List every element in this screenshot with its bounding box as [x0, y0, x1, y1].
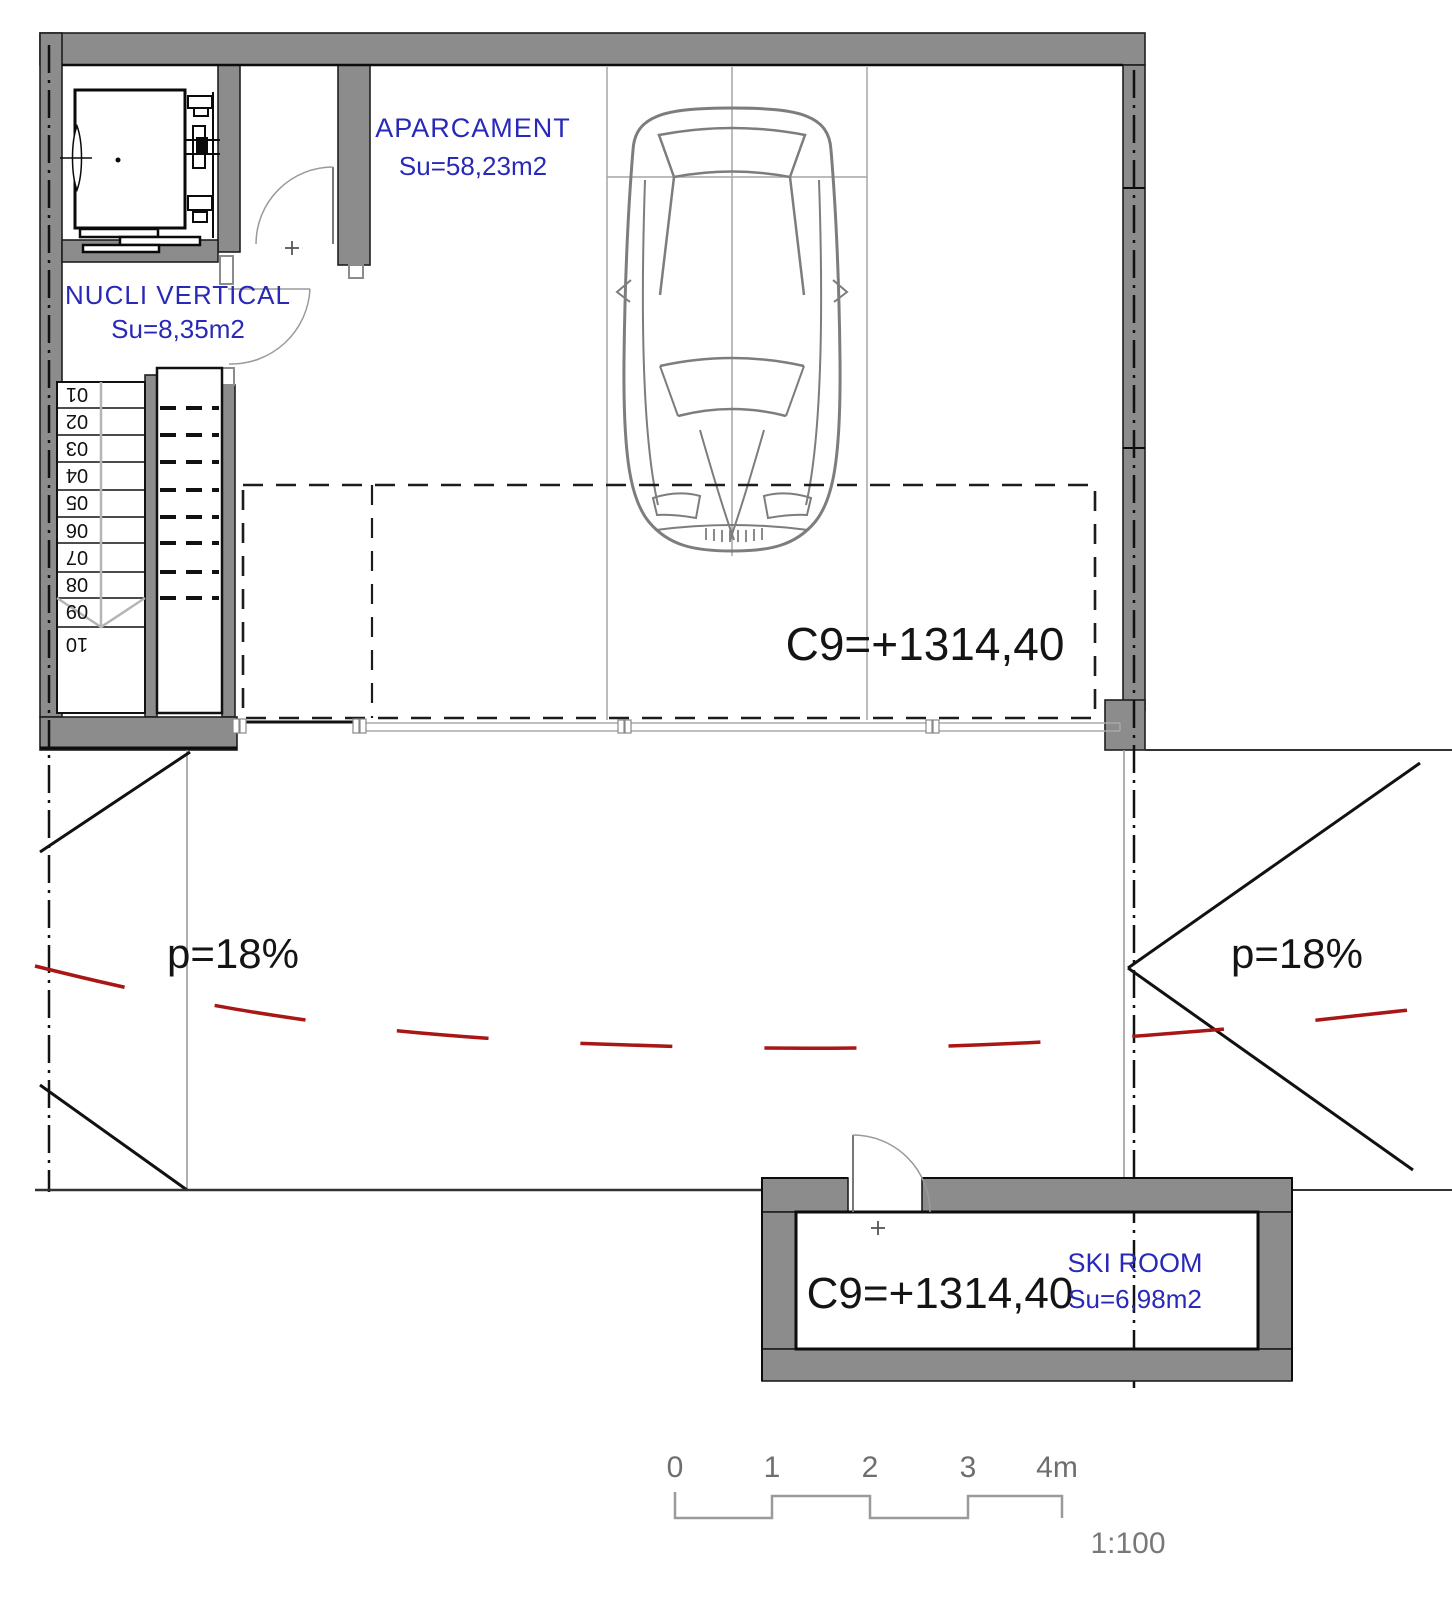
label-aparcament: APARCAMENT	[375, 113, 571, 143]
wall-stub-apartment	[338, 65, 370, 265]
car-headlight-left	[653, 493, 700, 518]
label-level-ski: C9=+1314,40	[807, 1269, 1074, 1318]
label-aparcament-area: Su=58,23m2	[399, 151, 547, 181]
ramp-diagonal-left-lower	[40, 1085, 187, 1190]
floor-plan-drawing: APARCAMENT Su=58,23m2 NUCLI VERTICAL Su=…	[0, 0, 1452, 1600]
c9-dashed-outline	[243, 485, 1095, 718]
floor-plan-page: APARCAMENT Su=58,23m2 NUCLI VERTICAL Su=…	[0, 0, 1452, 1600]
ski-wall-top-right	[922, 1178, 1292, 1212]
elevator-car	[75, 90, 185, 228]
door-swing-upper	[256, 167, 333, 244]
ramp-diagonal-right-lower	[1128, 968, 1413, 1170]
svg-text:04: 04	[66, 464, 88, 486]
svg-text:4m: 4m	[1036, 1451, 1078, 1484]
car-a-pillar-right	[790, 177, 804, 295]
stair-upper-flight-shaft	[157, 368, 222, 713]
svg-text:03: 03	[66, 437, 88, 459]
ski-wall-right	[1258, 1212, 1292, 1349]
svg-text:3: 3	[960, 1451, 977, 1484]
car-side-crease-left	[643, 180, 658, 505]
label-slope-left: p=18%	[167, 930, 299, 977]
scale-ratio: 1:100	[1090, 1527, 1165, 1560]
svg-text:2: 2	[862, 1451, 879, 1484]
label-nucli-area: Su=8,35m2	[111, 314, 245, 344]
door-axis-plus	[285, 241, 299, 255]
wall-right-foot	[1105, 700, 1145, 750]
elevator	[60, 90, 220, 252]
garage-slab-edge	[233, 719, 1120, 733]
label-ski-room: SKI ROOM	[1067, 1248, 1202, 1278]
svg-text:10: 10	[66, 633, 88, 655]
wall-stair-middle	[145, 375, 157, 717]
wall-stair-right	[222, 385, 235, 717]
label-ski-area: Su=6,98m2	[1068, 1284, 1202, 1314]
ski-wall-top-left	[762, 1178, 848, 1212]
svg-text:08: 08	[66, 573, 88, 595]
ski-wall-bottom	[762, 1349, 1292, 1381]
wall-stub-elevator	[218, 65, 240, 252]
wall-top	[40, 33, 1145, 65]
svg-text:09: 09	[66, 600, 88, 622]
car-side-crease-right	[806, 180, 821, 505]
scale-bar	[675, 1492, 1062, 1518]
svg-text:07: 07	[66, 546, 88, 568]
svg-text:0: 0	[667, 1451, 684, 1484]
car-headlight-right	[764, 493, 811, 518]
scale-bar-labels: 0 1 2 3 4m 1:100	[667, 1451, 1166, 1560]
svg-text:01: 01	[66, 383, 88, 405]
svg-text:1: 1	[764, 1451, 781, 1484]
label-level-garage: C9=+1314,40	[786, 618, 1065, 670]
ski-door-swing	[853, 1135, 930, 1212]
wall-stair-bottom	[40, 717, 237, 750]
elevator-center-dot	[116, 158, 121, 163]
svg-text:06: 06	[66, 519, 88, 541]
svg-text:05: 05	[66, 491, 88, 513]
car-a-pillar-left	[660, 177, 674, 295]
labels: APARCAMENT Su=58,23m2 NUCLI VERTICAL Su=…	[65, 113, 1363, 1560]
label-slope-right: p=18%	[1231, 930, 1363, 977]
ramp-diagonal-left-upper	[40, 752, 190, 852]
ski-door-axis-plus	[871, 1221, 885, 1235]
ramp-slope-curve-red	[35, 966, 1452, 1048]
ski-room	[762, 1135, 1292, 1381]
label-nucli-vertical: NUCLI VERTICAL	[65, 280, 291, 310]
svg-text:02: 02	[66, 410, 88, 432]
ski-wall-left	[762, 1212, 796, 1349]
elevator-mechanism	[186, 92, 220, 238]
